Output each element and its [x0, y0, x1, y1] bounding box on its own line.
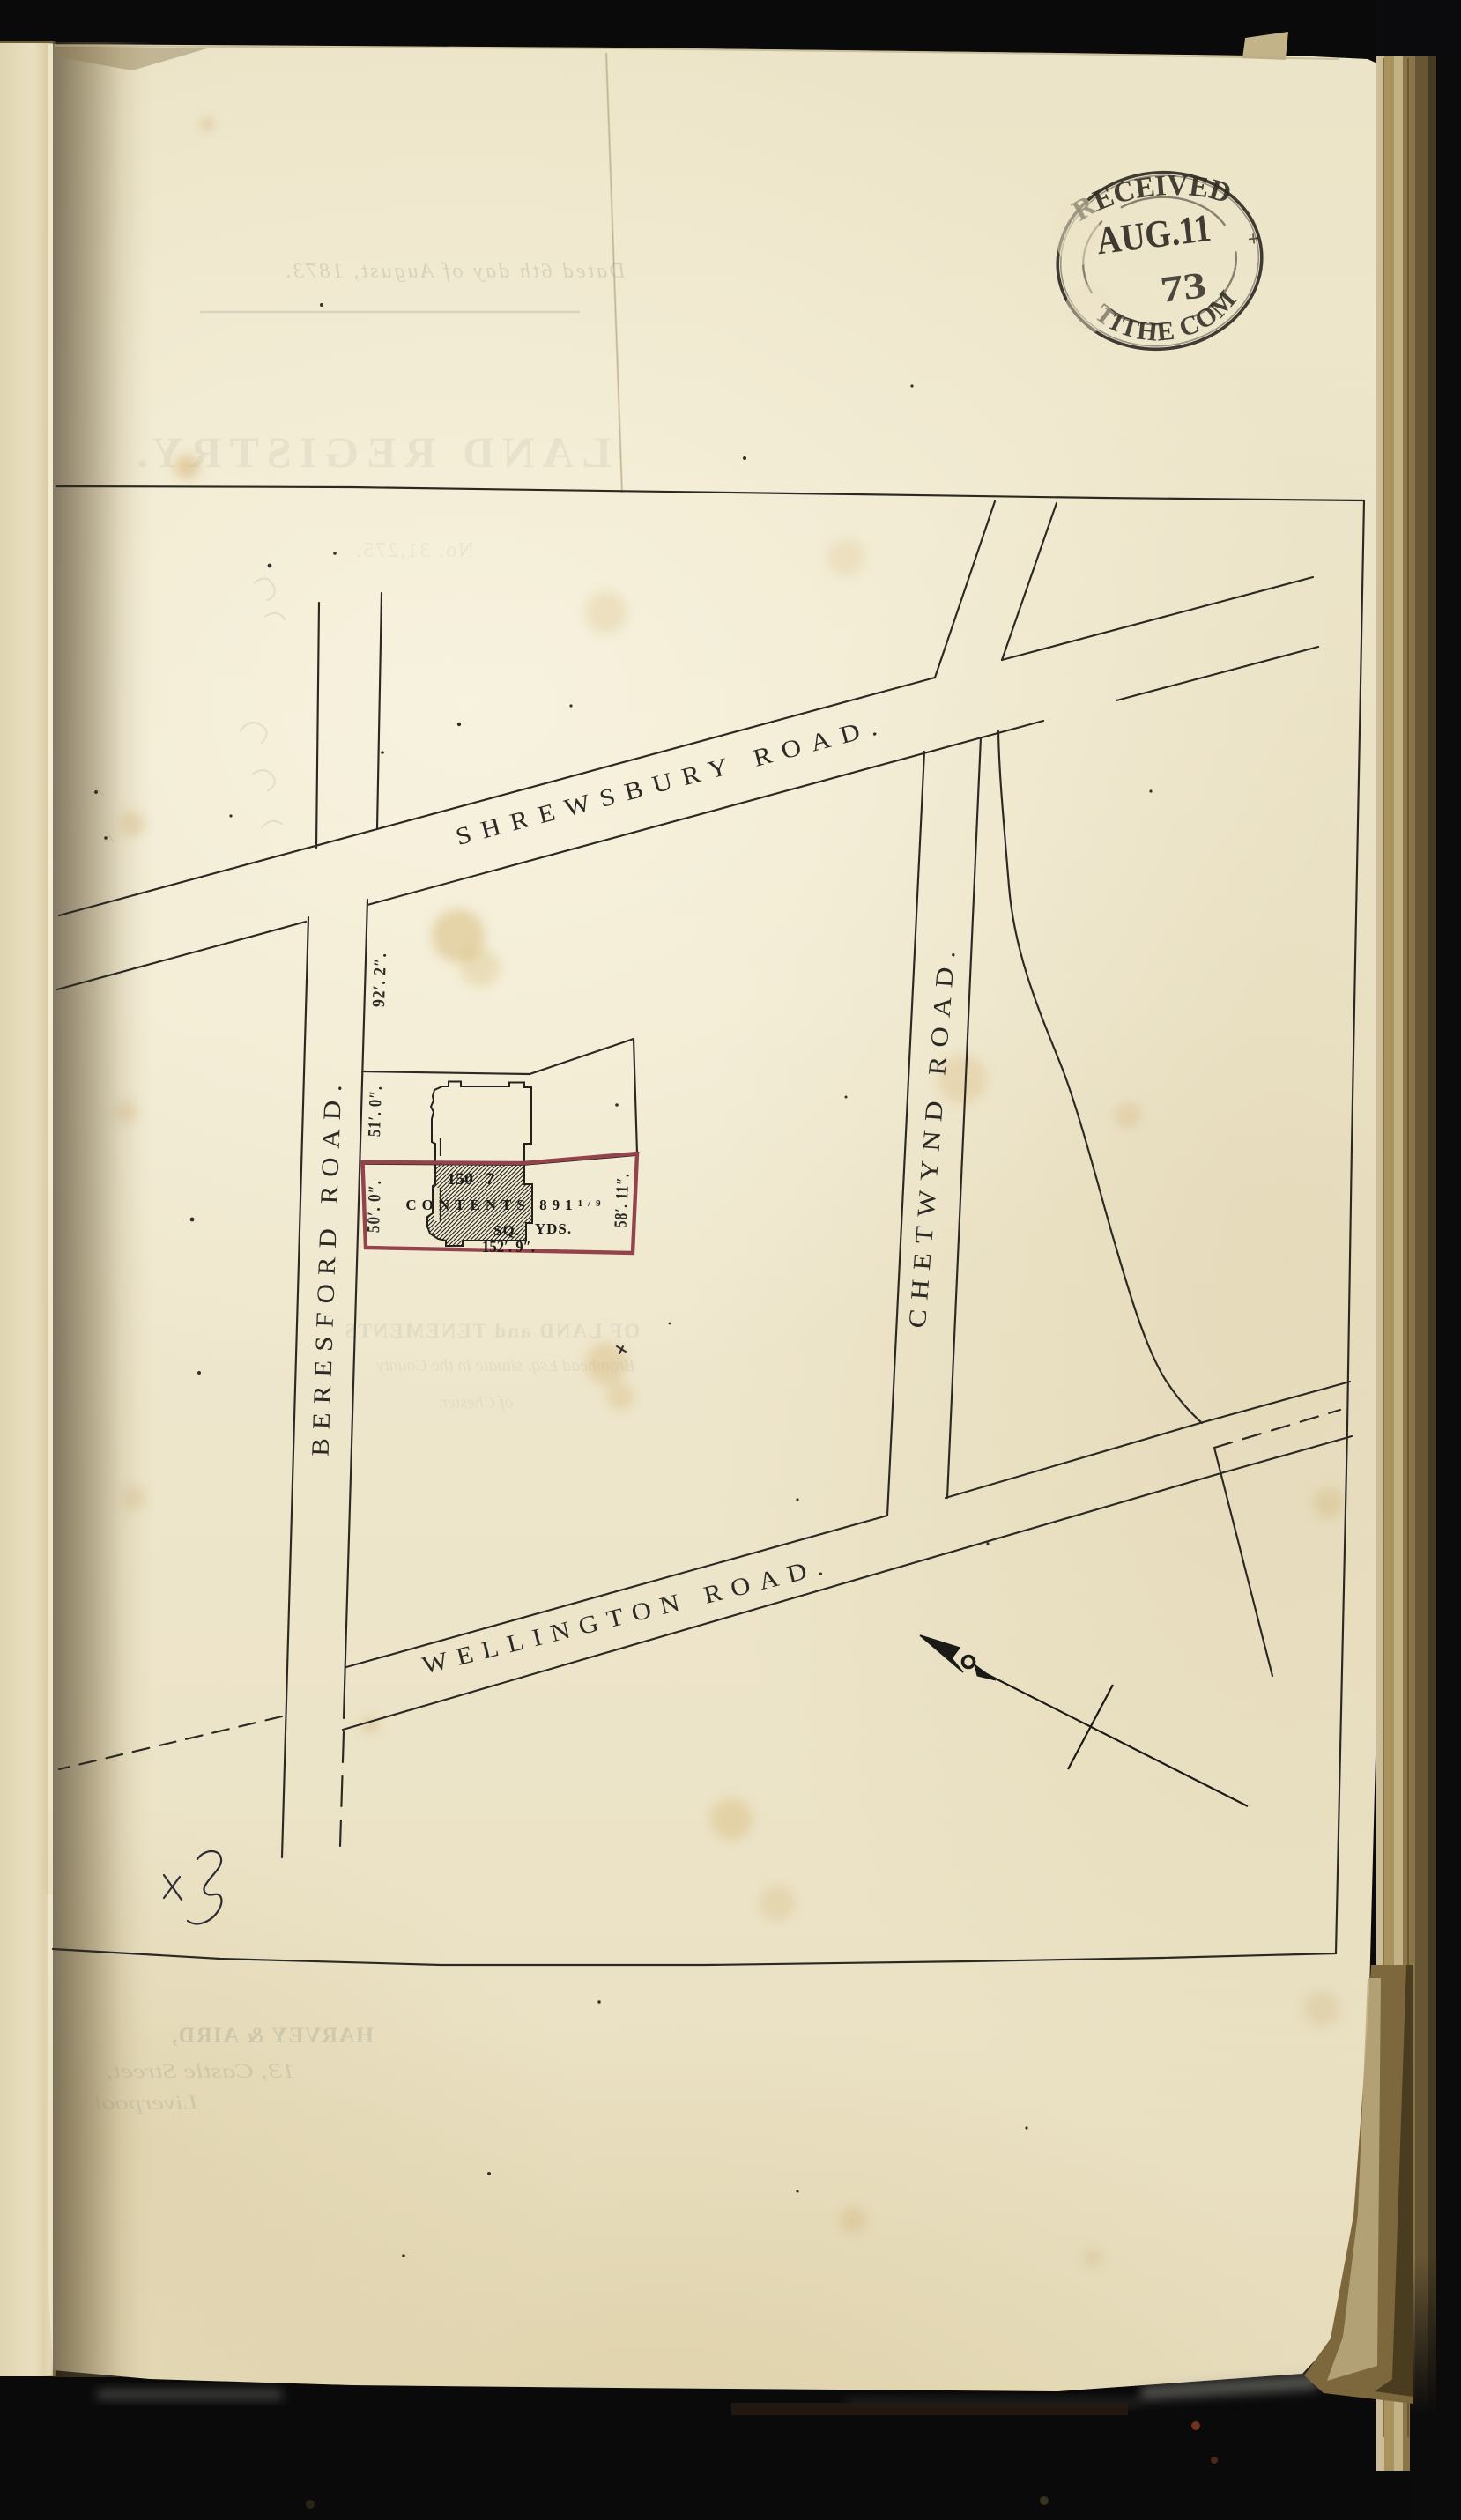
- svg-text:No. 31,275.: No. 31,275.: [354, 539, 473, 562]
- svg-text:92′. 2″.: 92′. 2″.: [369, 952, 390, 1008]
- svg-text:OF LAND and TENEMENTS: OF LAND and TENEMENTS: [344, 1320, 641, 1342]
- svg-text:LAND REGISTRY.: LAND REGISTRY.: [129, 427, 612, 477]
- svg-text:CONTENTS 8911/9: CONTENTS 8911/9: [405, 1197, 605, 1213]
- svg-text:152′. 9″.: 152′. 9″.: [482, 1238, 535, 1256]
- svg-text:50′. 0″.: 50′. 0″.: [364, 1180, 385, 1234]
- svg-text:of Chester.: of Chester.: [438, 1393, 514, 1412]
- svg-text:7: 7: [486, 1170, 494, 1189]
- svg-text:150: 150: [447, 1170, 473, 1189]
- svg-text:WELLINGTON ROAD.: WELLINGTON ROAD.: [419, 1552, 834, 1680]
- svg-text:58′. 11″.: 58′. 11″.: [611, 1173, 633, 1228]
- svg-text:51′. 0″.: 51′. 0″.: [365, 1086, 386, 1138]
- svg-text:HARVEY & AIRD,: HARVEY & AIRD,: [171, 2024, 374, 2048]
- svg-text:YDS.: YDS.: [535, 1220, 572, 1237]
- svg-text:SQ.: SQ.: [493, 1222, 520, 1239]
- svg-text:Liverpool.: Liverpool.: [88, 2092, 199, 2114]
- svg-text:Dated 6th day of August, 1873.: Dated 6th day of August, 1873.: [283, 260, 627, 283]
- svg-text:BERESFORD ROAD.: BERESFORD ROAD.: [307, 1076, 347, 1457]
- svg-text:13, Castle Street,: 13, Castle Street,: [107, 2060, 296, 2082]
- svg-text:AUG.11: AUG.11: [1094, 206, 1213, 263]
- svg-text:+: +: [1246, 227, 1261, 251]
